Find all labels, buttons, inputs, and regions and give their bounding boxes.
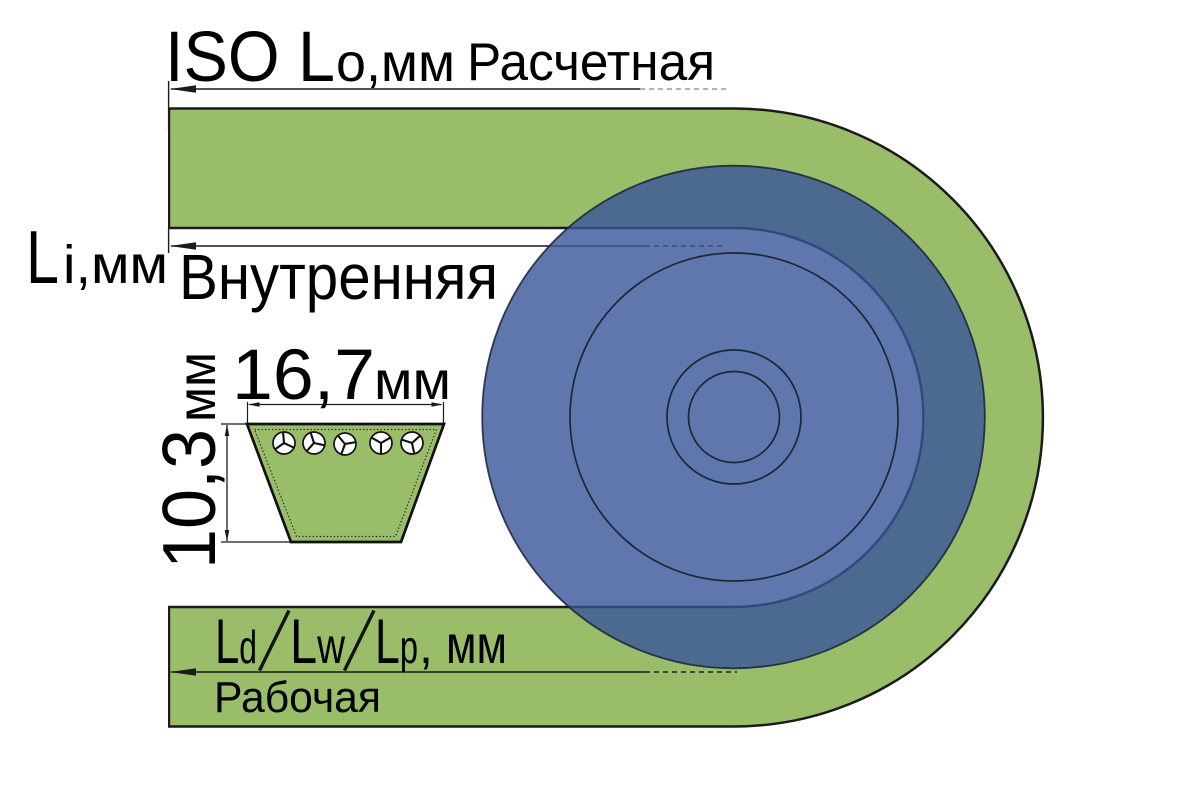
svg-text:o,мм: o,мм bbox=[336, 33, 455, 93]
svg-text:ISO L: ISO L bbox=[165, 18, 335, 97]
svg-text:Расчетная: Расчетная bbox=[467, 33, 715, 92]
svg-text:мм: мм bbox=[446, 615, 507, 675]
svg-text:i,мм: i,мм bbox=[63, 235, 168, 295]
svg-text:L: L bbox=[26, 215, 59, 299]
svg-text:,: , bbox=[419, 618, 433, 674]
svg-text:Рабочая: Рабочая bbox=[214, 673, 381, 722]
svg-text:16,7: 16,7 bbox=[232, 336, 375, 415]
svg-text:мм: мм bbox=[167, 352, 227, 422]
svg-text:мм: мм bbox=[374, 351, 451, 411]
svg-text:Lw: Lw bbox=[290, 607, 346, 677]
svg-text:Внутренняя: Внутренняя bbox=[179, 241, 498, 313]
svg-text:10,3: 10,3 bbox=[147, 429, 231, 569]
